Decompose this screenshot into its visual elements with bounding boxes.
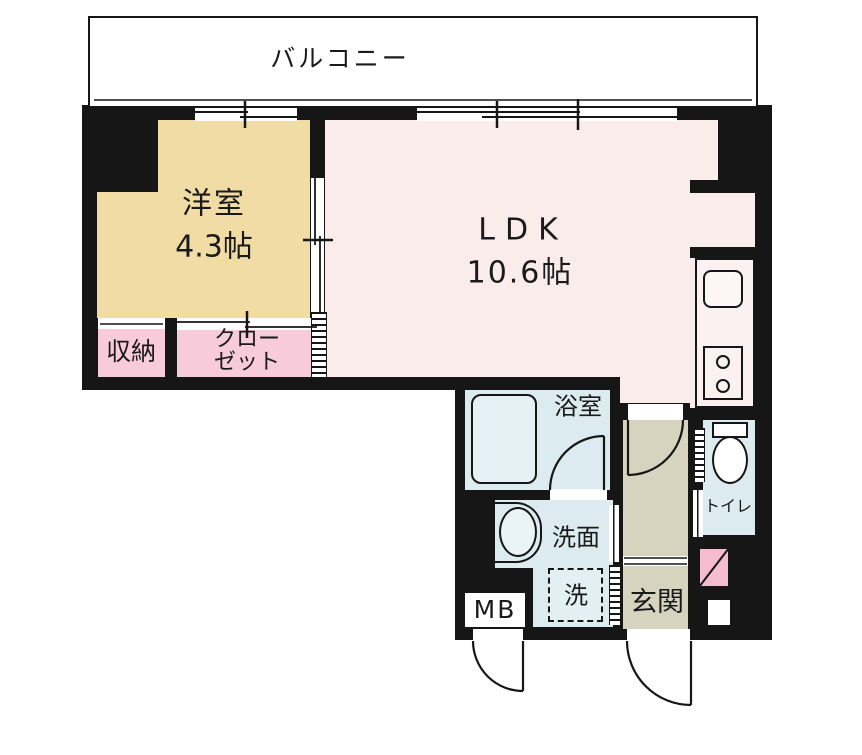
closet-label-line2: ゼット xyxy=(214,350,280,375)
washroom-sliding-door xyxy=(609,505,619,562)
closet-label-line1: クロー xyxy=(214,327,280,352)
ldk-floor xyxy=(325,120,718,180)
wall-corner-notch xyxy=(97,120,158,192)
closet-label: クロー ゼット xyxy=(214,328,280,374)
entrance-door-opening xyxy=(627,629,690,641)
window-ldk xyxy=(417,108,677,121)
entrance-step xyxy=(623,556,688,566)
storage-sliding-door xyxy=(98,318,165,329)
meter-box-door-arc xyxy=(473,641,523,691)
storage-label: 収納 xyxy=(106,339,156,365)
hall-door-opening xyxy=(628,404,683,420)
ldk-floor-3 xyxy=(620,180,690,403)
washroom-label: 洗面 xyxy=(552,525,600,550)
shoe-box xyxy=(698,547,730,588)
window-western-room xyxy=(195,108,297,121)
toilet-folding-door xyxy=(694,428,705,482)
toilet-door-lower xyxy=(693,490,703,537)
washing-machine-label: 洗 xyxy=(564,583,588,608)
entrance-door-arc xyxy=(627,641,691,705)
western-room-size: 4.3帖 xyxy=(175,231,253,263)
ldk-floor-fridge-space xyxy=(690,193,755,247)
stove-burner-1 xyxy=(716,355,730,369)
toilet-label: トイレ xyxy=(704,499,752,516)
sliding-door-western-ldk xyxy=(311,178,324,312)
stove-burner-2 xyxy=(716,379,730,393)
pipe-space xyxy=(708,600,730,625)
closet-folding-door xyxy=(311,312,327,377)
hallway-floor xyxy=(623,420,688,556)
bathroom-door-opening xyxy=(550,489,607,500)
ldk-label: LDK xyxy=(478,214,568,246)
bathtub xyxy=(471,394,537,484)
toilet-bowl xyxy=(712,436,748,484)
washroom-folding-door xyxy=(609,565,621,625)
meter-box-label: MB xyxy=(474,597,517,623)
kitchen-sink xyxy=(703,270,743,308)
entrance-label: 玄関 xyxy=(630,589,684,617)
ldk-size: 10.6帖 xyxy=(467,257,574,289)
western-room-label: 洋室 xyxy=(182,188,246,220)
bathroom-label: 浴室 xyxy=(554,394,602,419)
floor-plan: バルコニー 洋室 4.3帖 収納 クロー ゼット LDK 10.6帖 浴室 洗面… xyxy=(0,0,862,755)
balcony-area xyxy=(88,16,758,108)
wash-basin xyxy=(499,507,537,557)
balcony-label: バルコニー xyxy=(270,46,410,72)
meter-box-door-opening xyxy=(473,629,523,641)
